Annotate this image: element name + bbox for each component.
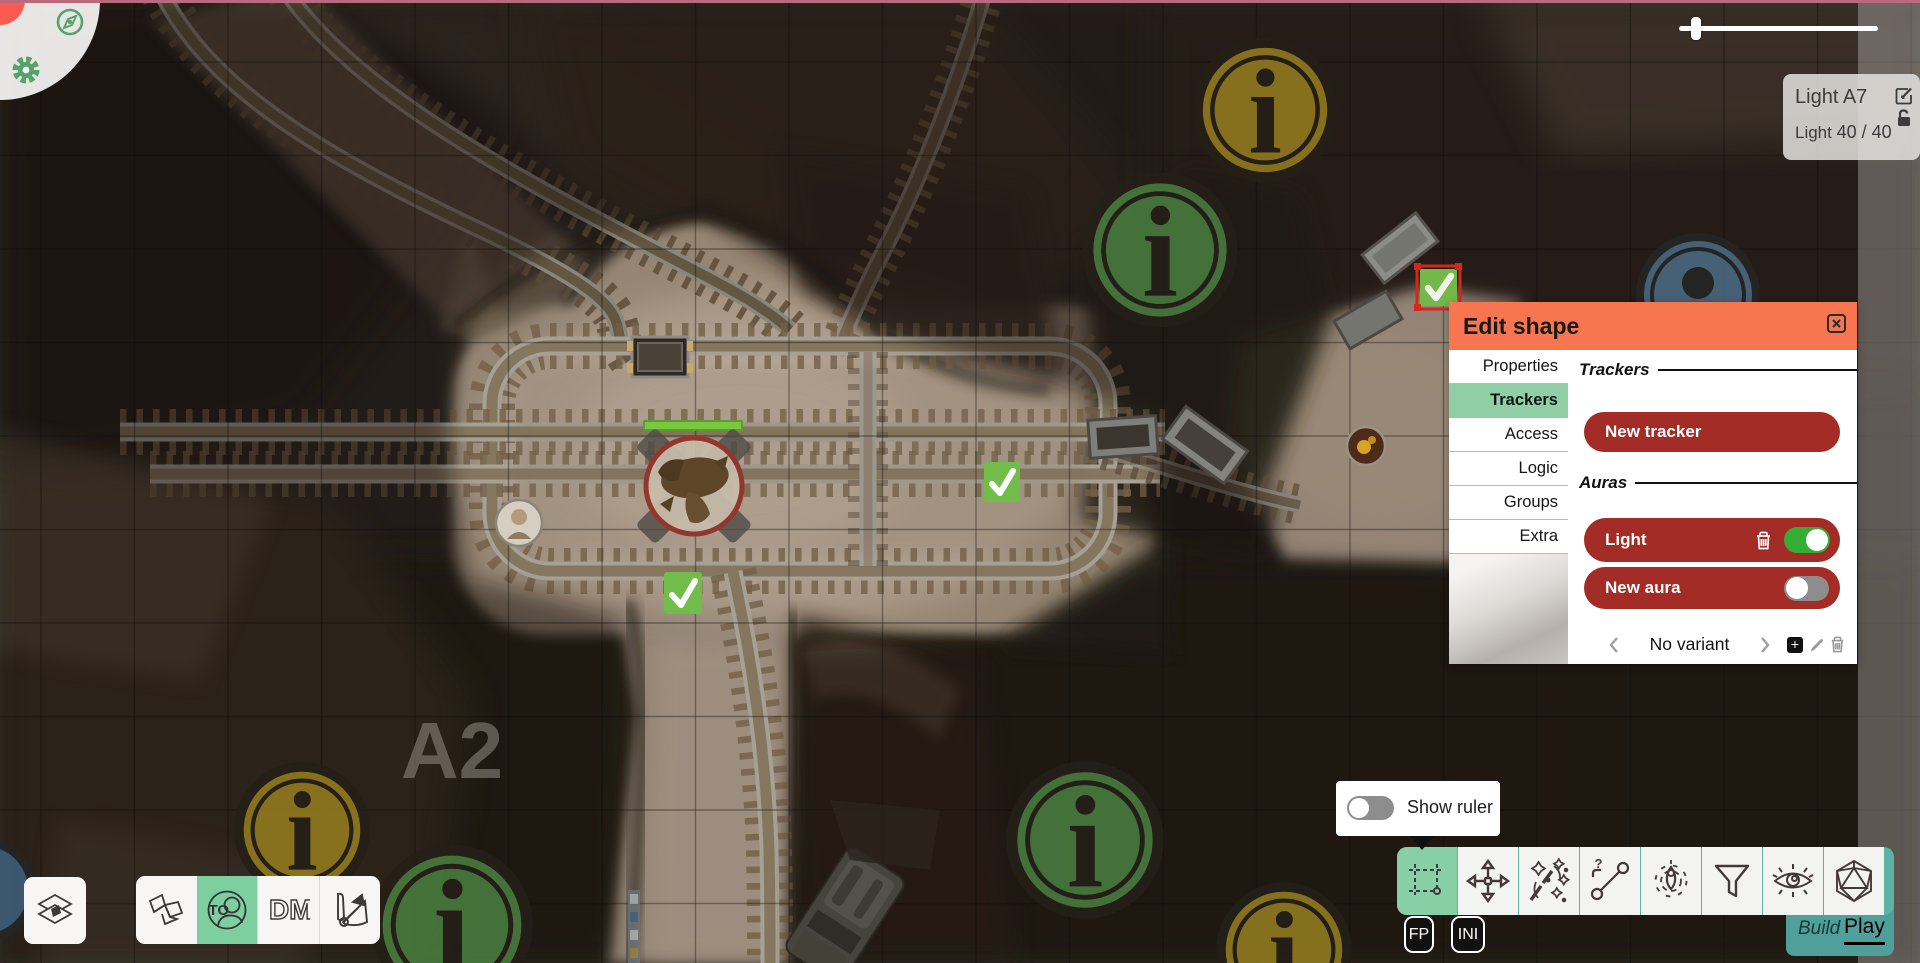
svg-text:DM: DM [269, 894, 310, 925]
svg-text:TO: TO [208, 902, 229, 919]
svg-text:A2: A2 [401, 706, 503, 795]
svg-text:?: ? [1595, 859, 1603, 871]
